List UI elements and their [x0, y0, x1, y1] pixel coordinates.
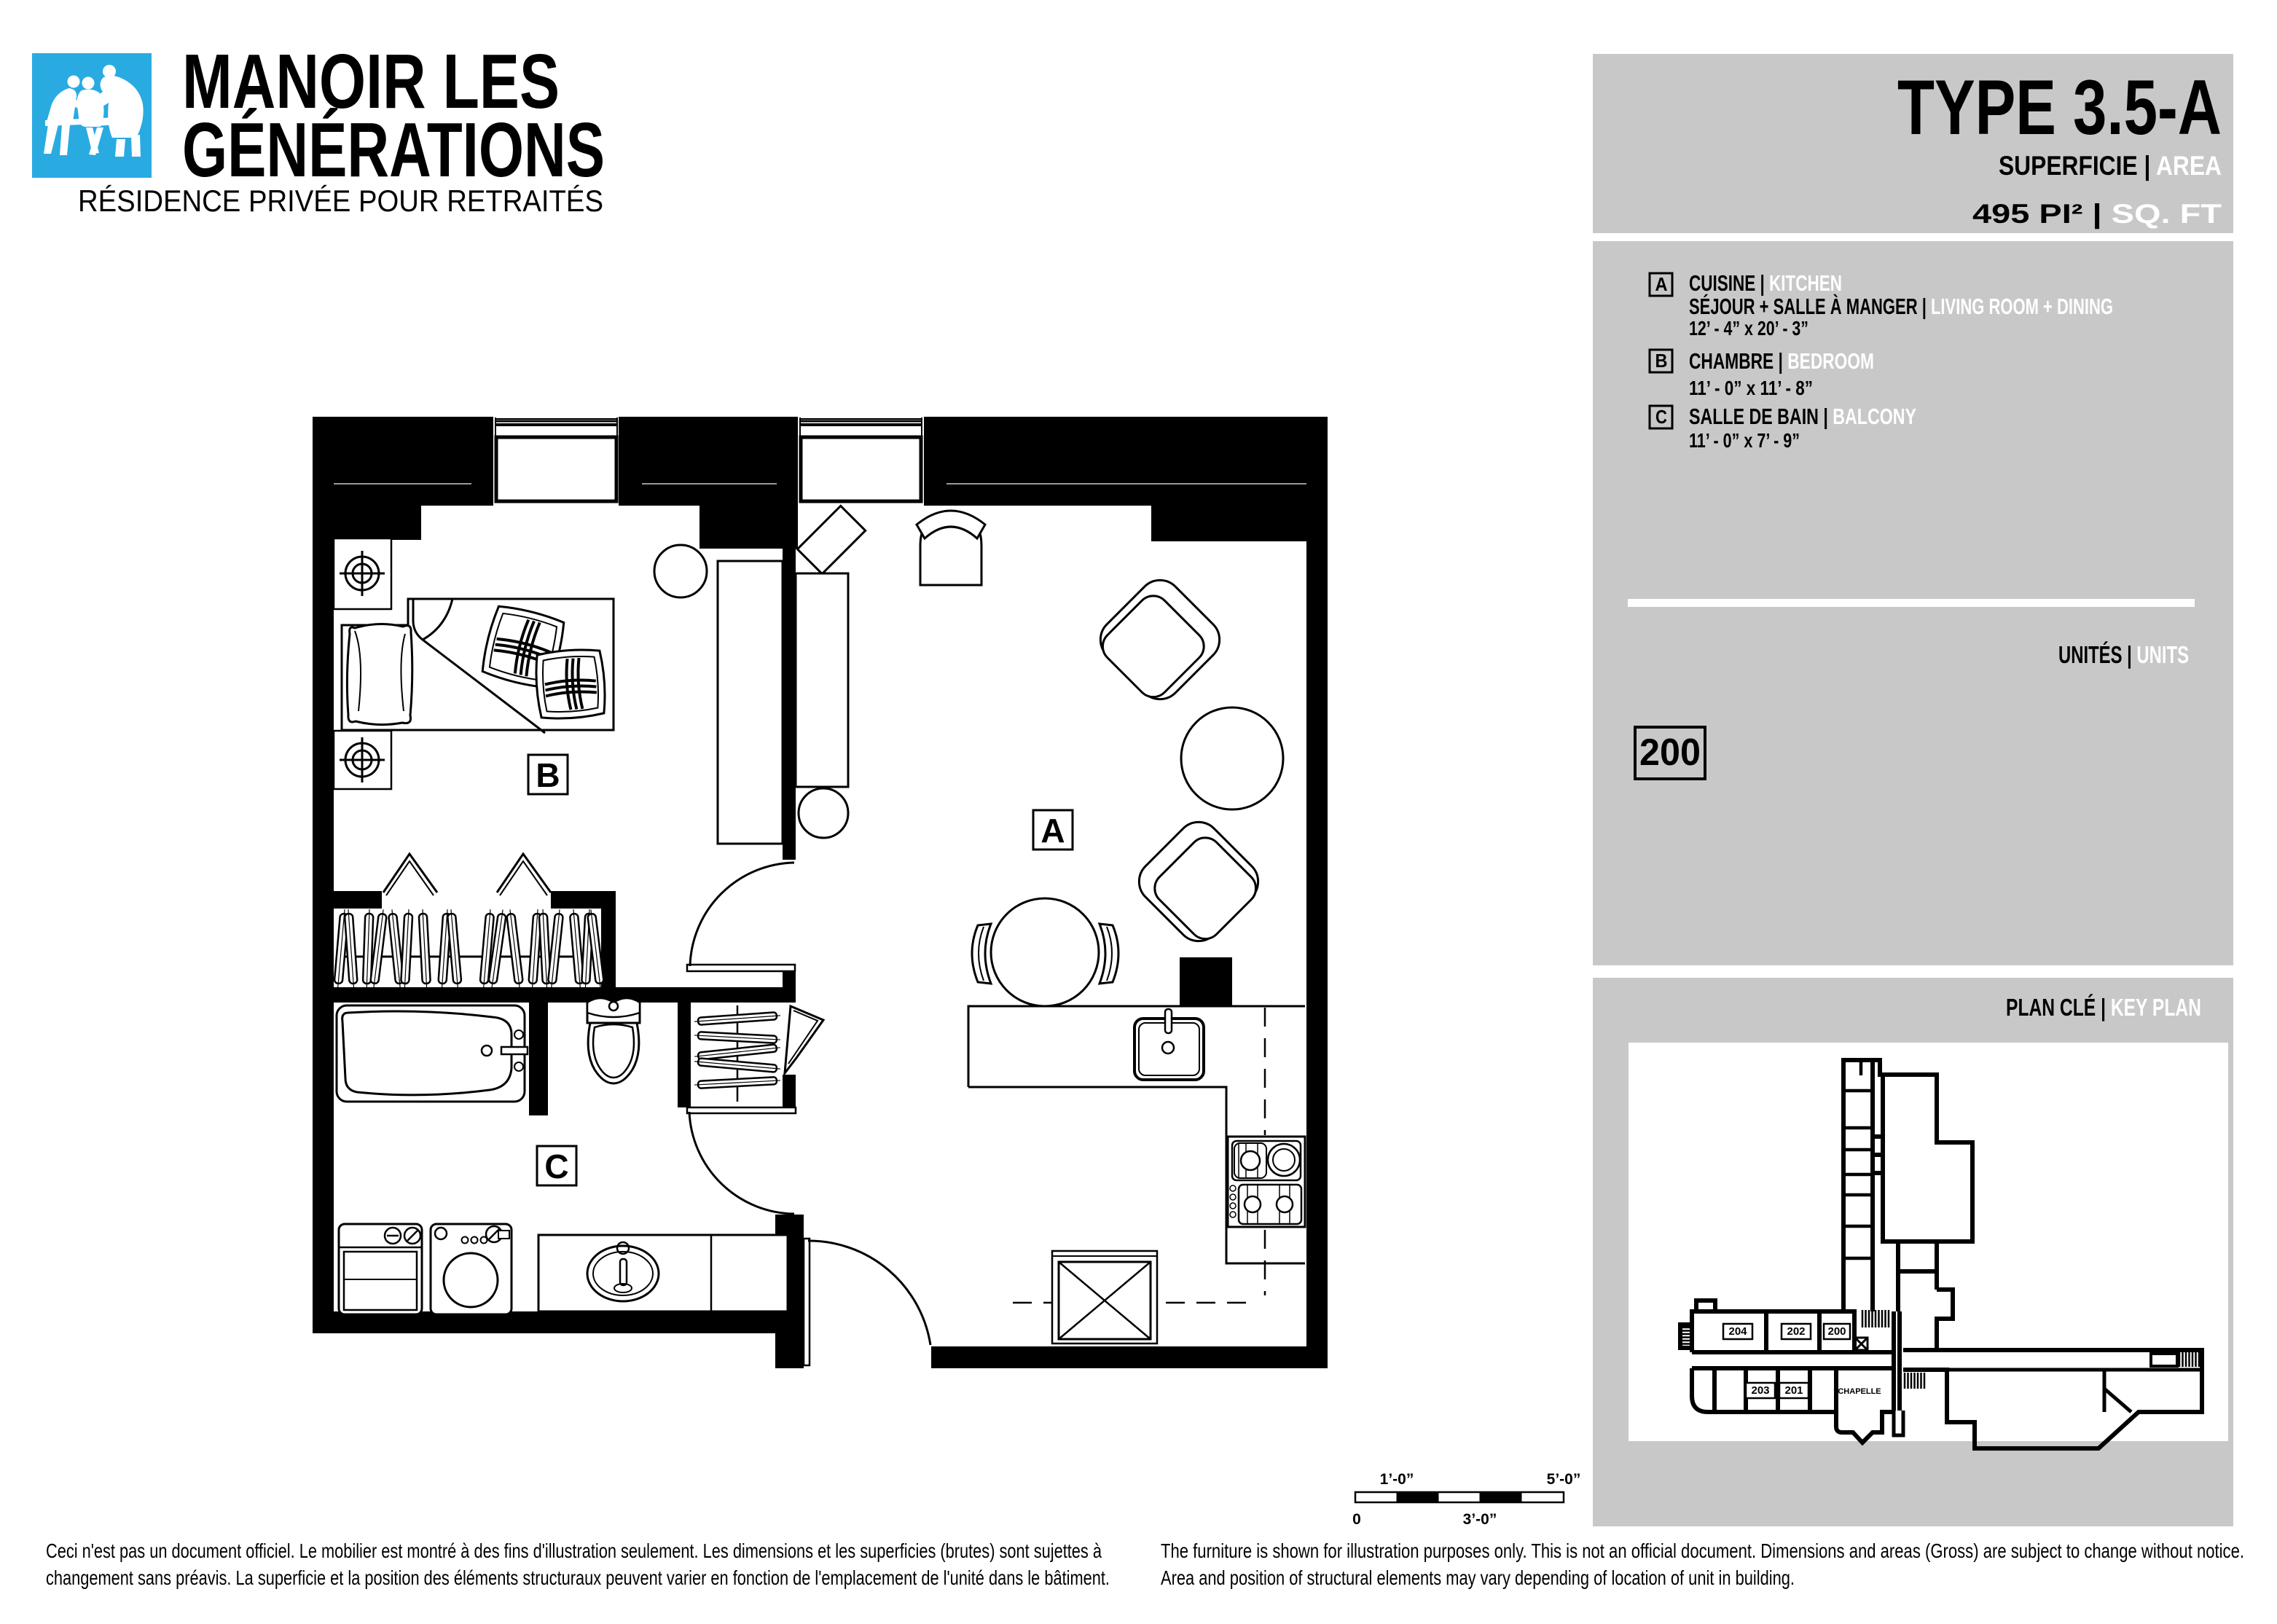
svg-text:3’-0”: 3’-0” — [1463, 1511, 1497, 1528]
svg-text:RÉSIDENCE PRIVÉE POUR RETRAITÉ: RÉSIDENCE PRIVÉE POUR RETRAITÉS — [78, 184, 603, 218]
svg-text:A: A — [1040, 812, 1065, 850]
svg-text:5’-0”: 5’-0” — [1547, 1471, 1581, 1488]
svg-text:12’ - 4” x 20’ - 3”: 12’ - 4” x 20’ - 3” — [1689, 317, 1808, 340]
svg-text:202: 202 — [1787, 1325, 1805, 1338]
svg-text:TYPE 3.5-A: TYPE 3.5-A — [1897, 63, 2222, 151]
svg-text:CHAPELLE: CHAPELLE — [1838, 1387, 1881, 1396]
svg-text:UNITÉS | UNITS: UNITÉS | UNITS — [2058, 641, 2189, 668]
svg-text:A: A — [1655, 273, 1668, 295]
svg-text:201: 201 — [1784, 1384, 1803, 1397]
svg-text:changement sans préavis. La su: changement sans préavis. La superficie e… — [46, 1566, 1110, 1589]
svg-text:B: B — [1655, 350, 1668, 372]
svg-text:495 PI² | SQ. FT: 495 PI² | SQ. FT — [1972, 199, 2222, 230]
svg-text:SÉJOUR + SALLE À MANGER | LIV: SÉJOUR + SALLE À MANGER | LIVING ROOM + … — [1689, 294, 2113, 319]
svg-text:11’ - 0” x 7’ - 9”: 11’ - 0” x 7’ - 9” — [1689, 429, 1800, 452]
svg-text:200: 200 — [1639, 731, 1701, 774]
svg-text:C: C — [544, 1148, 568, 1185]
svg-text:B: B — [536, 756, 560, 794]
svg-text:SALLE DE BAIN | BALCONY: SALLE DE BAIN | BALCONY — [1689, 404, 1916, 429]
svg-text:C: C — [1655, 406, 1667, 428]
svg-text:11’ - 0” x 11’ - 8”: 11’ - 0” x 11’ - 8” — [1689, 377, 1813, 399]
svg-text:CHAMBRE | BEDROOM: CHAMBRE | BEDROOM — [1689, 348, 1874, 374]
svg-text:204: 204 — [1728, 1325, 1747, 1338]
svg-text:Area and position of structura: Area and position of structural elements… — [1161, 1566, 1795, 1589]
svg-text:0: 0 — [1352, 1511, 1361, 1528]
svg-text:PLAN CLÉ | KEY PLAN: PLAN CLÉ | KEY PLAN — [2006, 994, 2201, 1021]
svg-text:The furniture is shown for ill: The furniture is shown for illustration … — [1161, 1539, 2244, 1562]
svg-text:1’-0”: 1’-0” — [1380, 1471, 1414, 1488]
svg-text:Ceci n'est pas un document off: Ceci n'est pas un document officiel. Le … — [46, 1539, 1102, 1562]
svg-text:GÉNÉRATIONS: GÉNÉRATIONS — [182, 107, 605, 193]
svg-text:200: 200 — [1827, 1325, 1846, 1338]
svg-text:203: 203 — [1751, 1384, 1769, 1397]
svg-text:SUPERFICIE | AREA: SUPERFICIE | AREA — [1999, 151, 2222, 181]
svg-text:CUISINE | KITCHEN: CUISINE | KITCHEN — [1689, 270, 1842, 296]
